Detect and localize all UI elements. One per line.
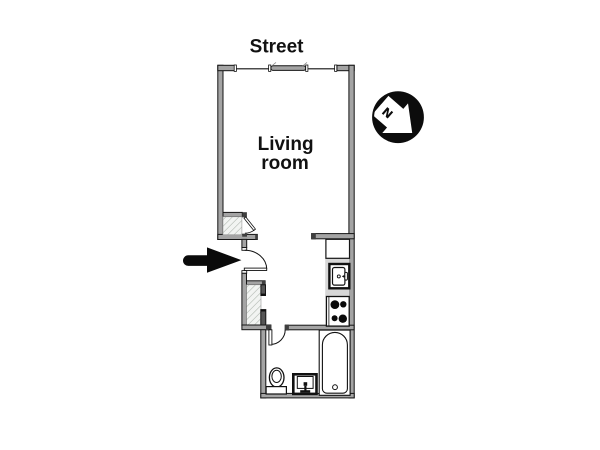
- svg-text:Street: Street: [250, 37, 305, 58]
- svg-text:room: room: [261, 153, 309, 174]
- svg-text:Living: Living: [258, 134, 314, 155]
